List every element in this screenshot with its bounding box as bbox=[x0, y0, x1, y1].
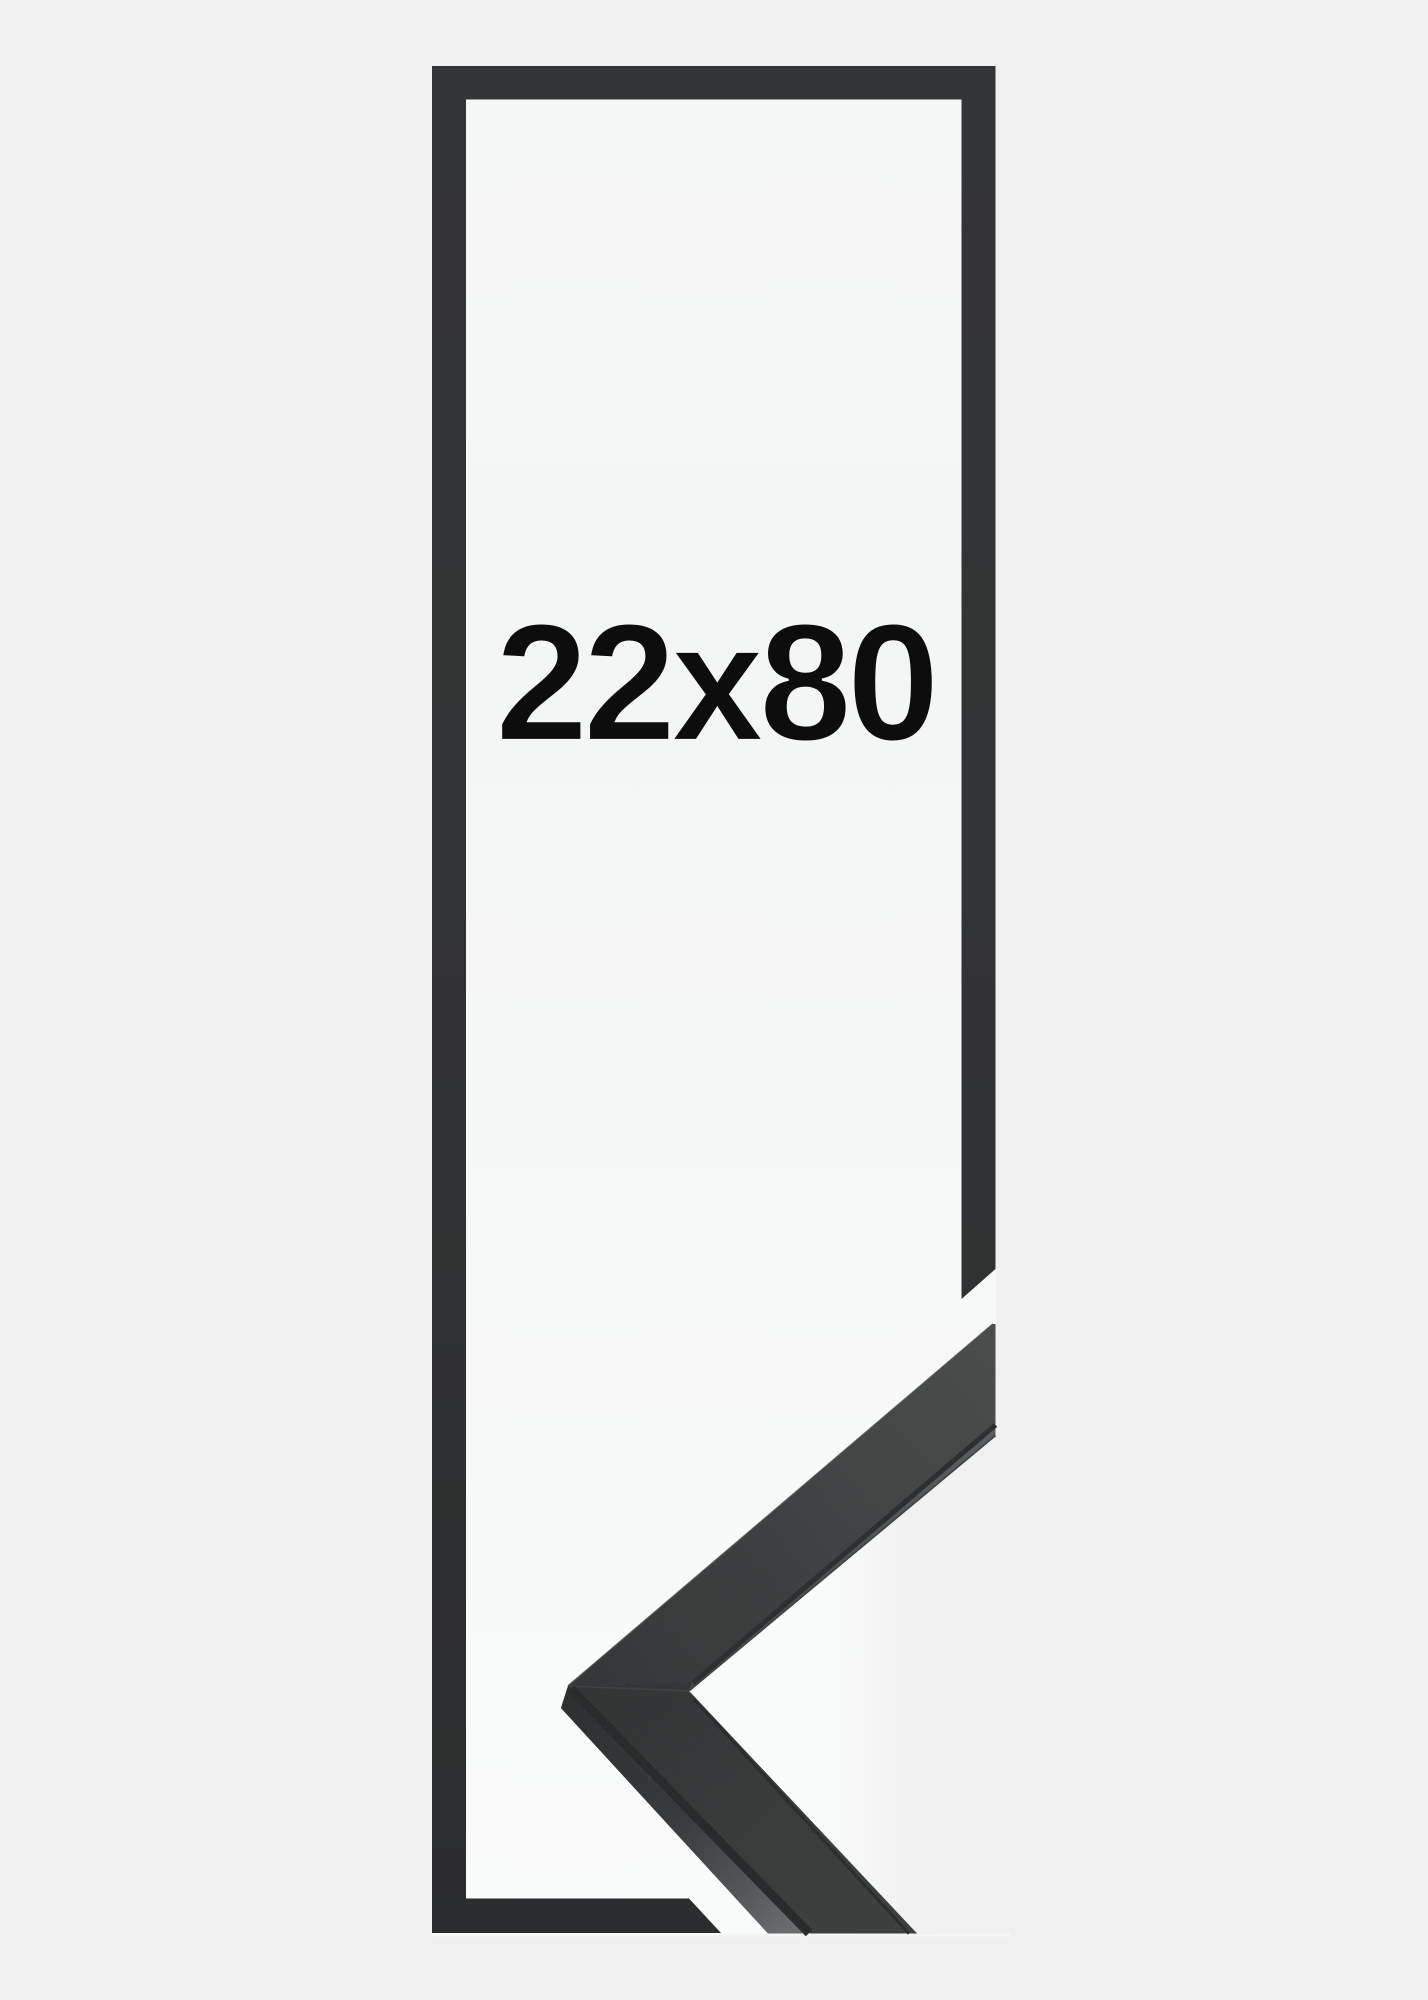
svg-text:22x80: 22x80 bbox=[495, 590, 934, 776]
